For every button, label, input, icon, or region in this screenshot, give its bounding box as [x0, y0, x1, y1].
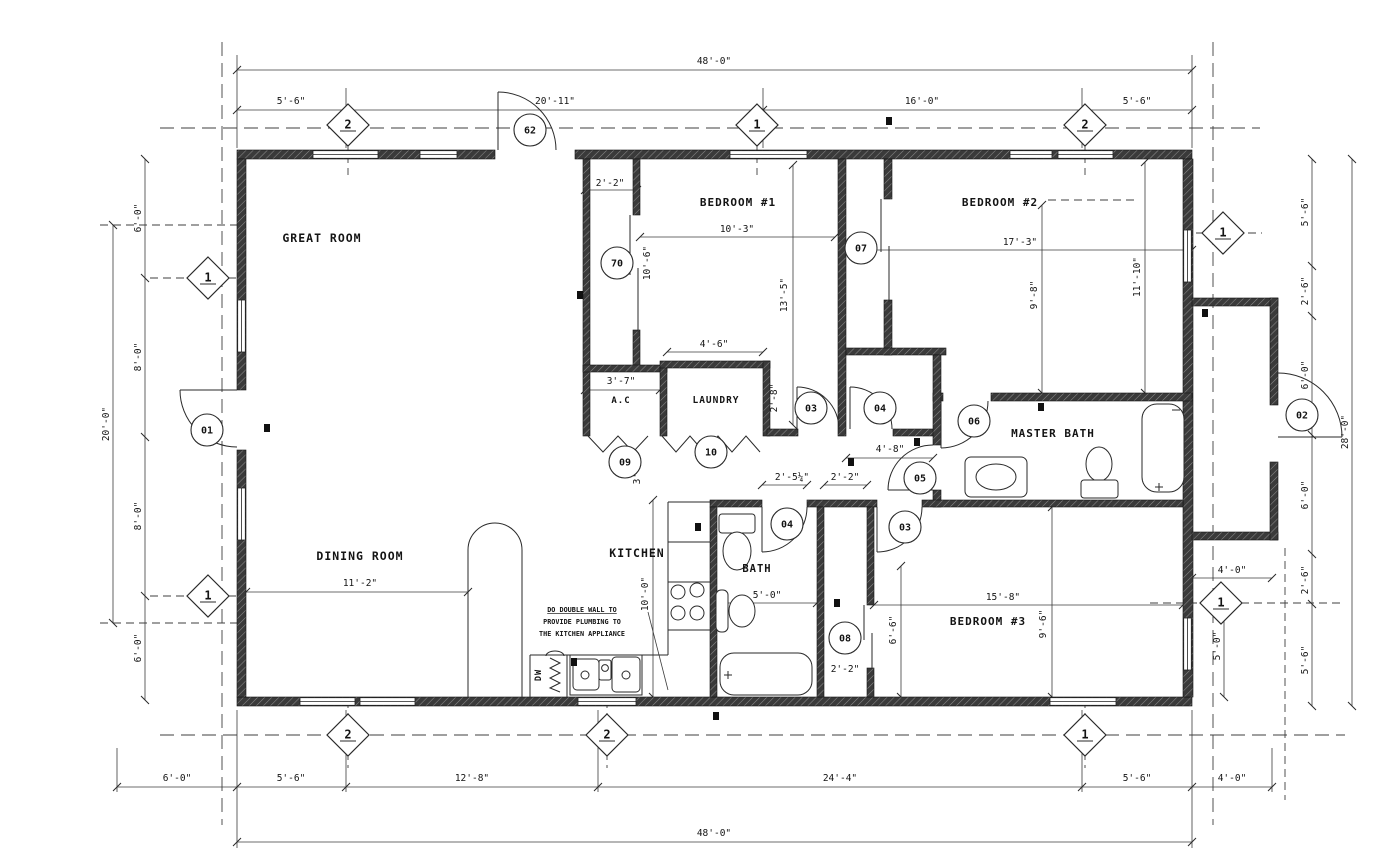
- room-label: DINING ROOM: [316, 549, 403, 563]
- dimension-text: 6'-0": [133, 204, 144, 233]
- floorplan-drawing: GREAT ROOMDINING ROOMKITCHENBEDROOM #1BE…: [0, 0, 1389, 868]
- door-tag-number: 04: [781, 520, 793, 531]
- dimension-text: 24'-4": [823, 773, 857, 784]
- bath-toilet-tank: [719, 514, 755, 533]
- dimension-text: 4'-8": [876, 444, 905, 455]
- dimension-text: 4'-6": [700, 339, 729, 350]
- note-line: PROVIDE PLUMBING TO: [543, 618, 621, 626]
- dimension-text: 6'-0": [1300, 361, 1311, 390]
- dimension-text: 6'-6": [888, 616, 899, 645]
- section-marker-number: 2: [344, 728, 351, 742]
- bath-sink: [729, 595, 755, 627]
- master-toilet-bowl: [1086, 447, 1112, 481]
- room-label: GREAT ROOM: [282, 231, 361, 245]
- dimension-text: 11'-10": [1132, 257, 1143, 297]
- door-tag-number: 10: [705, 448, 717, 459]
- dimension-text: 28'-0": [1340, 415, 1351, 449]
- dimension-text: 4'-0": [1218, 565, 1247, 576]
- dimension-text: 6'-0": [1300, 481, 1311, 510]
- dimension-text: 48'-0": [697, 56, 731, 67]
- room-label: BEDROOM #2: [962, 196, 1038, 209]
- dimension-text: 3'-7": [607, 376, 636, 387]
- room-label: MASTER BATH: [1011, 427, 1095, 440]
- section-marker-number: 1: [753, 118, 760, 132]
- master-toilet-tank: [1081, 480, 1118, 498]
- floorplan-sheet: GREAT ROOMDINING ROOMKITCHENBEDROOM #1BE…: [0, 0, 1389, 868]
- dimension-text: 4'-0": [1218, 773, 1247, 784]
- dimension-text: 2'-6": [1300, 566, 1311, 595]
- room-label: BATH: [742, 563, 771, 575]
- bath-tub: [720, 653, 812, 695]
- master-tub: [1142, 404, 1184, 492]
- room-label: A.C: [611, 396, 630, 406]
- door-tag-number: 06: [968, 417, 980, 428]
- dimension-text: 8'-0": [133, 343, 144, 372]
- dimension-text: 15'-8": [986, 592, 1020, 603]
- dimension-text: 17'-3": [1003, 237, 1037, 248]
- dimension-text: 10'-0": [640, 577, 651, 611]
- dimension-text: 2'-2": [596, 178, 625, 189]
- section-marker-number: 1: [204, 589, 211, 603]
- dimension-text: 5'-6": [277, 773, 306, 784]
- dimension-text: 2'-8": [769, 384, 780, 413]
- note-line: THE KITCHEN APPLIANCE: [539, 630, 625, 638]
- dimension-text: 2'-2": [831, 472, 860, 483]
- door-tag-number: 03: [899, 523, 911, 534]
- section-marker-number: 2: [603, 728, 610, 742]
- section-marker-number: 2: [344, 118, 351, 132]
- dimension-text: 16'-0": [905, 96, 939, 107]
- room-label: KITCHEN: [609, 546, 664, 560]
- dimension-text: 20'-11": [535, 96, 575, 107]
- dimension-text: 5'-0": [753, 590, 782, 601]
- door-tag-number: 70: [611, 259, 623, 270]
- section-marker-number: 1: [1217, 596, 1224, 610]
- door-tag-number: 08: [839, 634, 851, 645]
- dimension-text: 9'-8": [1029, 281, 1040, 310]
- dimension-text: 20'-0": [101, 407, 112, 441]
- dimension-text: 5'-6": [1300, 646, 1311, 675]
- dimension-text: 6'-0": [163, 773, 192, 784]
- room-label: DW: [534, 669, 544, 681]
- dimension-text: 5'-6": [1123, 773, 1152, 784]
- dimension-text: 5'-6": [277, 96, 306, 107]
- dimension-text: 9'-6": [1038, 610, 1049, 639]
- dimension-text: 6'-0": [133, 634, 144, 663]
- note-line: DO DOUBLE WALL TO: [547, 606, 617, 614]
- dimension-text: 13'-5": [779, 278, 790, 312]
- dimension-text: 8'-0": [133, 502, 144, 531]
- dimension-text: 2'-6": [1300, 277, 1311, 306]
- door-tag-number: 04: [874, 404, 886, 415]
- room-label: LAUNDRY: [692, 395, 739, 406]
- dimension-text: 5'-6": [1123, 96, 1152, 107]
- dimension-text: 5'-6": [1300, 198, 1311, 227]
- dimension-text: 2'-2": [831, 664, 860, 675]
- door-tag-number: 03: [805, 404, 817, 415]
- pantry-outline: [468, 523, 522, 697]
- dimension-text: 12'-8": [455, 773, 489, 784]
- walls: [237, 150, 1278, 706]
- dimension-text: 11'-2": [343, 578, 377, 589]
- door-tag-number: 09: [619, 458, 631, 469]
- dimension-text: 10'-3": [720, 224, 754, 235]
- water-heater-symbol: [550, 658, 560, 692]
- section-marker-number: 1: [1081, 728, 1088, 742]
- section-marker-number: 1: [1219, 226, 1226, 240]
- dimension-text: 2'-5¼": [775, 472, 809, 483]
- fixtures: [468, 404, 1184, 697]
- room-labels: GREAT ROOMDINING ROOMKITCHENBEDROOM #1BE…: [282, 196, 1095, 681]
- room-label: BEDROOM #1: [700, 196, 776, 209]
- door-tag-number: 05: [914, 474, 926, 485]
- dimension-text: 10'-6": [642, 246, 653, 280]
- door-tag-number: 07: [855, 244, 867, 255]
- kitchen-plumbing-note: DO DOUBLE WALL TOPROVIDE PLUMBING TOTHE …: [539, 606, 625, 638]
- room-label: BEDROOM #3: [950, 615, 1026, 628]
- door-tag-number: 02: [1296, 411, 1308, 422]
- door-tag-number: 01: [201, 426, 213, 437]
- dimension-text: 48'-0": [697, 828, 731, 839]
- dimension-text: 5'-0": [1212, 632, 1223, 661]
- door-tag-number: 62: [524, 126, 536, 137]
- section-marker-number: 1: [204, 271, 211, 285]
- section-marker-number: 2: [1081, 118, 1088, 132]
